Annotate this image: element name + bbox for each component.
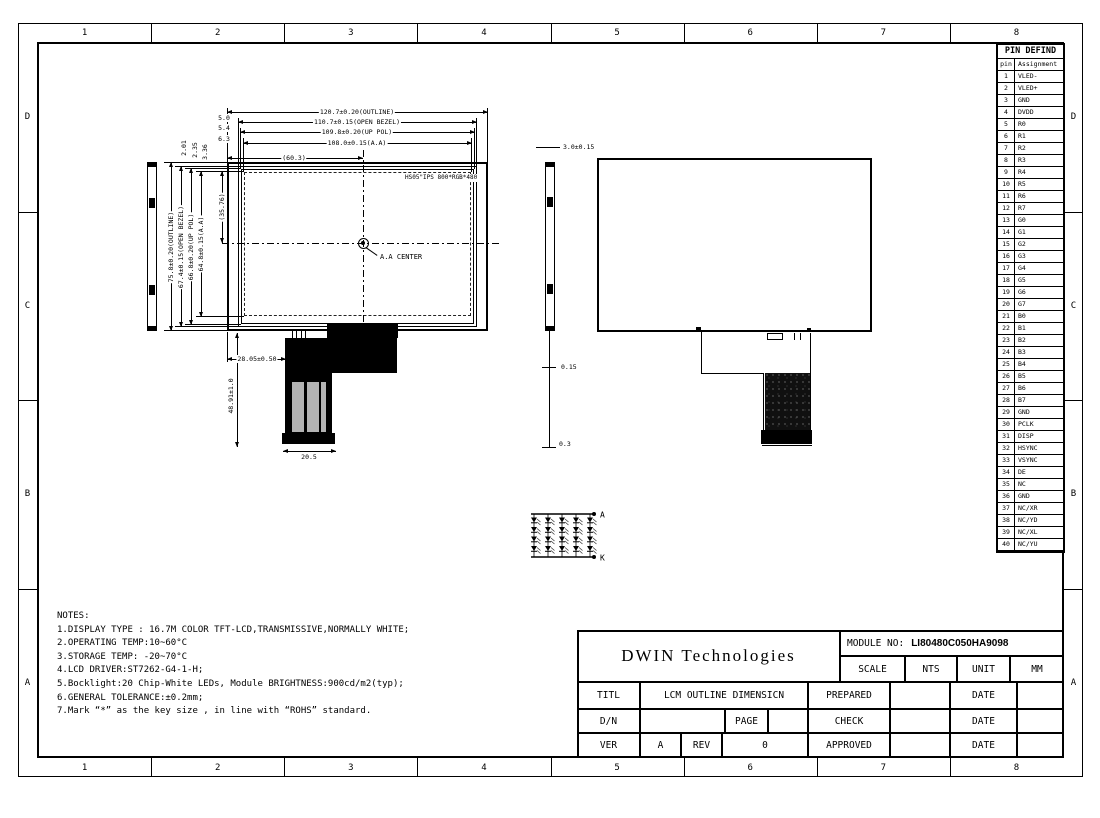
pin-table-row: 32HSYNC (998, 443, 1063, 455)
grid-tick (284, 758, 285, 777)
pin-table-title: PIN DEFIND (998, 45, 1063, 59)
led-emission-arrow (579, 529, 583, 532)
pin-table-row: 40NC/YU (998, 539, 1063, 551)
led-diode (573, 527, 579, 532)
dimension-line (542, 447, 556, 448)
led-emission-arrow (565, 548, 569, 551)
pin-assignment: NC/YU (1015, 539, 1063, 550)
notes-title: NOTES: (57, 610, 487, 624)
dimension-line (536, 147, 560, 148)
dim-up-pol-height: 66.8±0.20(UP POL) (187, 213, 195, 282)
cathode-terminal (592, 555, 596, 559)
pin-table-row: 31DISP (998, 431, 1063, 443)
dimension-line (237, 333, 238, 447)
pin-table-row: 21B0 (998, 311, 1063, 323)
note-line: 5.Bocklight:20 Chip-White LEDs, Module B… (57, 678, 487, 692)
grid-col-label: 1 (82, 28, 87, 38)
dim-top-offset-2: 2.35 (191, 141, 199, 159)
note-line: 7.Mark “*” as the key size , in line wit… (57, 705, 487, 719)
led-diode (531, 518, 537, 523)
grid-tick (551, 758, 552, 777)
pin-number: 33 (998, 455, 1015, 466)
side-bar-cap-bottom (545, 326, 555, 331)
ver-label: VER (577, 733, 640, 758)
led-emission-arrow (551, 519, 555, 522)
pin-assignment: G2 (1015, 239, 1063, 250)
pin-table-row: 22B1 (998, 323, 1063, 335)
dim-fpc-length: 48.91±1.0 (227, 377, 235, 414)
led-emission-arrow (537, 519, 541, 522)
grid-tick (151, 23, 152, 42)
grid-tick (950, 758, 951, 777)
pin-table-row: 3GND (998, 95, 1063, 107)
grid-tick (18, 212, 37, 213)
fpc-stripe (292, 382, 304, 432)
led-diode (531, 527, 537, 532)
prepared-value (890, 682, 950, 709)
pin-assignment: R5 (1015, 179, 1063, 190)
pin-table-row: 25B4 (998, 359, 1063, 371)
left-strip-tab (149, 198, 155, 208)
pin-assignment: G3 (1015, 251, 1063, 262)
dim-open-bezel-height: 67.4±0.15(OPEN BEZEL) (177, 205, 185, 289)
led-emission-arrow (565, 541, 569, 544)
grid-col-label: 8 (1014, 28, 1019, 38)
pin-table-row: 15G2 (998, 239, 1063, 251)
led-emission-arrow (551, 541, 555, 544)
led-diode (545, 537, 551, 542)
dim-outline-height: 75.8±0.20(OUTLINE) (167, 211, 175, 283)
pin-table-row: 18G5 (998, 275, 1063, 287)
anode-terminal (592, 512, 596, 516)
fpc-tab (292, 330, 297, 339)
dimension-line (487, 108, 488, 163)
grid-col-label: 5 (614, 28, 619, 38)
dn-label: D/N (577, 709, 640, 733)
date-label: DATE (950, 709, 1017, 733)
grid-row-label: C (25, 301, 30, 311)
pin-assignment: B4 (1015, 359, 1063, 370)
led-diode (573, 537, 579, 542)
pin-assignment: B7 (1015, 395, 1063, 406)
unit-label: UNIT (957, 656, 1010, 682)
grid-tick (417, 758, 418, 777)
page-label: PAGE (725, 709, 768, 733)
led-emission-arrow (565, 522, 569, 525)
led-emission-arrow (537, 551, 541, 554)
side-bar-tab (547, 197, 553, 207)
dimension-line (810, 333, 811, 431)
pin-number: 7 (998, 143, 1015, 154)
pin-assignment: R7 (1015, 203, 1063, 214)
led-emission-arrow (551, 522, 555, 525)
pin-table-row: 6R1 (998, 131, 1063, 143)
module-no-value: LI80480C050HA9098 (911, 638, 1008, 649)
pin-number: 9 (998, 167, 1015, 178)
dim-up-pol-width: 109.8±0.20(UP POL) (321, 128, 393, 136)
pin-assignment: B6 (1015, 383, 1063, 394)
date-value (1017, 682, 1064, 709)
note-line: 1.DISPLAY TYPE : 16.7M COLOR TFT-LCD,TRA… (57, 624, 487, 638)
dimension-line (164, 162, 228, 163)
pin-assignment: VSYNC (1015, 455, 1063, 466)
led-emission-arrow (579, 538, 583, 541)
pin-number: 40 (998, 539, 1015, 550)
left-strip-cap-bottom (147, 326, 157, 331)
dimension-line (363, 150, 364, 328)
dimension-line (238, 118, 239, 167)
pin-assignment: B0 (1015, 311, 1063, 322)
grid-col-label: 7 (881, 28, 886, 38)
grid-tick (684, 758, 685, 777)
module-no-label: MODULE NO: (847, 638, 904, 649)
grid-row-label: B (1071, 489, 1076, 499)
pin-table-row: 7R2 (998, 143, 1063, 155)
led-diode (559, 546, 565, 551)
dimension-line (701, 331, 702, 374)
dim-fpc-width: 20.5 (300, 453, 318, 461)
note-line: 3.STORAGE TEMP: -20~70°C (57, 651, 487, 665)
grid-col-label: 8 (1014, 763, 1019, 773)
dim-protrusion: 0.3 (558, 440, 572, 448)
pin-col-header: pin (998, 59, 1015, 70)
dimension-line (283, 451, 336, 452)
pin-number: 37 (998, 503, 1015, 514)
pin-assignment: R3 (1015, 155, 1063, 166)
pin-table-row: 34DE (998, 467, 1063, 479)
dimension-line (794, 333, 795, 340)
led-emission-arrow (551, 548, 555, 551)
dimension-line (175, 326, 239, 327)
pin-number: 26 (998, 371, 1015, 382)
grid-tick (1064, 400, 1083, 401)
rear-outline-rect (597, 158, 872, 332)
anode-label: A (600, 511, 605, 520)
grid-col-label: 2 (215, 763, 220, 773)
pin-assignment: G6 (1015, 287, 1063, 298)
grid-tick (1064, 212, 1083, 213)
pin-table-row: 27B6 (998, 383, 1063, 395)
led-diode (531, 537, 537, 542)
led-emission-arrow (537, 522, 541, 525)
fpc-wide-section (285, 338, 397, 373)
grid-col-label: 3 (348, 28, 353, 38)
dim-left-offset-2: 5.4 (217, 124, 231, 132)
pin-number: 29 (998, 407, 1015, 418)
grid-row-label: D (25, 112, 30, 122)
dimension-line (762, 445, 812, 446)
pin-table-row: 10R5 (998, 179, 1063, 191)
led-emission-arrow (593, 519, 597, 522)
pin-number: 20 (998, 299, 1015, 310)
dim-tape: 0.15 (560, 363, 578, 371)
dim-thickness: 3.0±0.15 (562, 143, 595, 151)
grid-row-label: A (1071, 678, 1076, 688)
dim-aa-width: 108.0±0.15(A.A) (327, 139, 388, 147)
side-bar-cap-top (545, 162, 555, 167)
led-diode (545, 546, 551, 551)
pin-number: 36 (998, 491, 1015, 502)
pin-table-row: 26B5 (998, 371, 1063, 383)
pin-table-row: 39NC/XL (998, 527, 1063, 539)
dimension-line (240, 128, 241, 169)
approved-label: APPROVED (808, 733, 890, 758)
pin-table-row: 33VSYNC (998, 455, 1063, 467)
fpc-stripe (307, 382, 319, 432)
date-value (1017, 709, 1064, 733)
led-diode (587, 518, 593, 523)
pin-assignment: PCLK (1015, 419, 1063, 430)
grid-tick (817, 758, 818, 777)
led-emission-arrow (537, 538, 541, 541)
led-emission-arrow (537, 548, 541, 551)
pin-table-row: 14G1 (998, 227, 1063, 239)
fpc-connector (282, 433, 335, 444)
fpc-stripe (321, 382, 326, 432)
pin-number: 10 (998, 179, 1015, 190)
pin-table-row: 36GND (998, 491, 1063, 503)
led-circuit-diagram: AK (515, 505, 615, 570)
pin-number: 15 (998, 239, 1015, 250)
pin-number: 14 (998, 227, 1015, 238)
check-value (890, 709, 950, 733)
grid-col-label: 6 (747, 763, 752, 773)
pin-assignment: G5 (1015, 275, 1063, 286)
pin-table-row: 9R4 (998, 167, 1063, 179)
dim-left-offset-3: 6.3 (217, 135, 231, 143)
pin-definition-table: PIN DEFIND pin Assignment 1VLED-2VLED+3G… (996, 43, 1065, 553)
dimension-line (185, 168, 241, 169)
left-side-strip (147, 162, 157, 331)
pin-assignment: R4 (1015, 167, 1063, 178)
side-bar-tab (547, 284, 553, 294)
pin-assignment: R1 (1015, 131, 1063, 142)
dimension-line (196, 316, 244, 317)
grid-tick (950, 23, 951, 42)
pin-assignment: HSYNC (1015, 443, 1063, 454)
grid-tick (284, 23, 285, 42)
rear-fpc-tab (767, 333, 783, 340)
grid-col-label: 2 (215, 28, 220, 38)
grid-row-label: A (25, 678, 30, 688)
rear-fpc-connector (761, 430, 812, 444)
dimension-line (222, 243, 502, 244)
pin-number: 21 (998, 311, 1015, 322)
dim-half-width: (60.3) (281, 154, 306, 162)
pin-number: 16 (998, 251, 1015, 262)
pin-table-row: 20G7 (998, 299, 1063, 311)
company-name: DWIN Technologies (577, 630, 840, 682)
led-emission-arrow (565, 538, 569, 541)
side-view-bar (545, 162, 555, 331)
approved-value (890, 733, 950, 758)
pin-number: 28 (998, 395, 1015, 406)
pin-number: 30 (998, 419, 1015, 430)
pin-assignment: B5 (1015, 371, 1063, 382)
dimension-line (701, 373, 764, 374)
grid-tick (1064, 589, 1083, 590)
fpc-tab (301, 330, 306, 339)
led-emission-arrow (551, 551, 555, 554)
pin-assignment: NC/XL (1015, 527, 1063, 538)
led-emission-arrow (551, 532, 555, 535)
led-diode (531, 546, 537, 551)
pin-assignment: VLED+ (1015, 83, 1063, 94)
date-value (1017, 733, 1064, 758)
pin-table-row: 12R7 (998, 203, 1063, 215)
led-diode (587, 546, 593, 551)
pin-number: 2 (998, 83, 1015, 94)
led-diode (573, 546, 579, 551)
pin-table-row: 8R3 (998, 155, 1063, 167)
led-emission-arrow (579, 551, 583, 554)
pin-number: 32 (998, 443, 1015, 454)
led-emission-arrow (537, 541, 541, 544)
rev-label: REV (681, 733, 722, 758)
dim-top-offset-1: 2.01 (180, 139, 188, 157)
page-value (768, 709, 808, 733)
note-line: 2.OPERATING TEMP:10~60°C (57, 637, 487, 651)
led-emission-arrow (565, 519, 569, 522)
pin-table-row: 4DVDD (998, 107, 1063, 119)
pin-table-row: 2VLED+ (998, 83, 1063, 95)
note-line: 6.GENERAL TOLERANCE:±0.2mm; (57, 692, 487, 706)
led-emission-arrow (537, 529, 541, 532)
left-strip-cap-top (147, 162, 157, 167)
pin-number: 13 (998, 215, 1015, 226)
prepared-label: PREPARED (808, 682, 890, 709)
grid-col-label: 4 (481, 28, 486, 38)
pin-number: 17 (998, 263, 1015, 274)
grid-tick (417, 23, 418, 42)
led-diode (545, 518, 551, 523)
scale-value: NTS (905, 656, 957, 682)
drawing-sheet: 120.7±0.20(OUTLINE) 110.7±0.15(OPEN BEZE… (0, 0, 1100, 818)
notes-block: NOTES: 1.DISPLAY TYPE : 16.7M COLOR TFT-… (57, 610, 487, 719)
pin-table-row: 19G6 (998, 287, 1063, 299)
pin-assignment: G7 (1015, 299, 1063, 310)
grid-col-label: 1 (82, 763, 87, 773)
led-emission-arrow (551, 529, 555, 532)
pin-number: 1 (998, 71, 1015, 82)
pin-assignment: B2 (1015, 335, 1063, 346)
drawing-title: LCM OUTLINE DIMENSICN (640, 682, 808, 709)
led-emission-arrow (593, 532, 597, 535)
pin-number: 24 (998, 347, 1015, 358)
dimension-line (175, 166, 239, 167)
led-emission-arrow (579, 519, 583, 522)
led-diode (587, 537, 593, 542)
pin-assignment: DVDD (1015, 107, 1063, 118)
led-emission-arrow (593, 548, 597, 551)
pin-assignment: NC (1015, 479, 1063, 490)
led-diode (587, 527, 593, 532)
unit-value: MM (1010, 656, 1064, 682)
pin-table-row: 28B7 (998, 395, 1063, 407)
led-emission-arrow (593, 538, 597, 541)
pin-table-row: 38NC/YD (998, 515, 1063, 527)
panel-spec-label: HS05"IPS 800*RGB*480 (404, 174, 478, 182)
rear-fpc-stiffener (765, 373, 810, 430)
led-diode (559, 537, 565, 542)
dimension-line (476, 118, 477, 167)
pin-table-row: 37NC/XR (998, 503, 1063, 515)
pin-table-row: 35NC (998, 479, 1063, 491)
dim-open-bezel-width: 110.7±0.15(OPEN BEZEL) (313, 118, 401, 126)
pin-number: 22 (998, 323, 1015, 334)
pin-number: 23 (998, 335, 1015, 346)
pin-number: 19 (998, 287, 1015, 298)
pin-assignment: DE (1015, 467, 1063, 478)
pin-assignment: B1 (1015, 323, 1063, 334)
pin-assignment: GND (1015, 491, 1063, 502)
pin-assignment: NC/XR (1015, 503, 1063, 514)
pin-table-row: 30PCLK (998, 419, 1063, 431)
led-emission-arrow (579, 522, 583, 525)
dimension-line (185, 324, 241, 325)
pin-assignment: GND (1015, 407, 1063, 418)
led-emission-arrow (565, 532, 569, 535)
ver-value: A (640, 733, 681, 758)
grid-row-label: D (1071, 112, 1076, 122)
led-emission-arrow (593, 541, 597, 544)
assignment-col-header: Assignment (1015, 59, 1063, 70)
pin-table-row: 5R0 (998, 119, 1063, 131)
led-diode (573, 518, 579, 523)
pin-number: 25 (998, 359, 1015, 370)
grid-tick (817, 23, 818, 42)
rev-value: 0 (722, 733, 808, 758)
pin-number: 27 (998, 383, 1015, 394)
led-emission-arrow (579, 548, 583, 551)
dn-value (640, 709, 725, 733)
scale-label: SCALE (840, 656, 905, 682)
led-emission-arrow (579, 532, 583, 535)
dimension-line (800, 333, 801, 340)
led-emission-arrow (593, 522, 597, 525)
dimension-line (763, 373, 764, 431)
dim-half-height: (35.76) (218, 192, 226, 221)
pin-table-row: 16G3 (998, 251, 1063, 263)
grid-tick (18, 400, 37, 401)
aa-center-label: A.A CENTER (379, 253, 423, 261)
grid-tick (151, 758, 152, 777)
grid-tick (684, 23, 685, 42)
pin-assignment: VLED- (1015, 71, 1063, 82)
left-strip-tab (149, 285, 155, 295)
pin-number: 5 (998, 119, 1015, 130)
led-emission-arrow (551, 538, 555, 541)
pin-number: 39 (998, 527, 1015, 538)
grid-row-label: C (1071, 301, 1076, 311)
grid-col-label: 3 (348, 763, 353, 773)
grid-row-label: B (25, 489, 30, 499)
dimension-line (549, 331, 550, 447)
pin-number: 6 (998, 131, 1015, 142)
pin-assignment: DISP (1015, 431, 1063, 442)
led-diode (559, 527, 565, 532)
dim-top-offset-3: 3.36 (201, 143, 209, 161)
date-label: DATE (950, 733, 1017, 758)
pin-number: 11 (998, 191, 1015, 202)
led-diode (545, 527, 551, 532)
rear-corner-nub (807, 328, 811, 332)
led-emission-arrow (565, 529, 569, 532)
cathode-label: K (600, 554, 605, 563)
led-emission-arrow (537, 532, 541, 535)
grid-tick (551, 23, 552, 42)
title-label: TITL (577, 682, 640, 709)
